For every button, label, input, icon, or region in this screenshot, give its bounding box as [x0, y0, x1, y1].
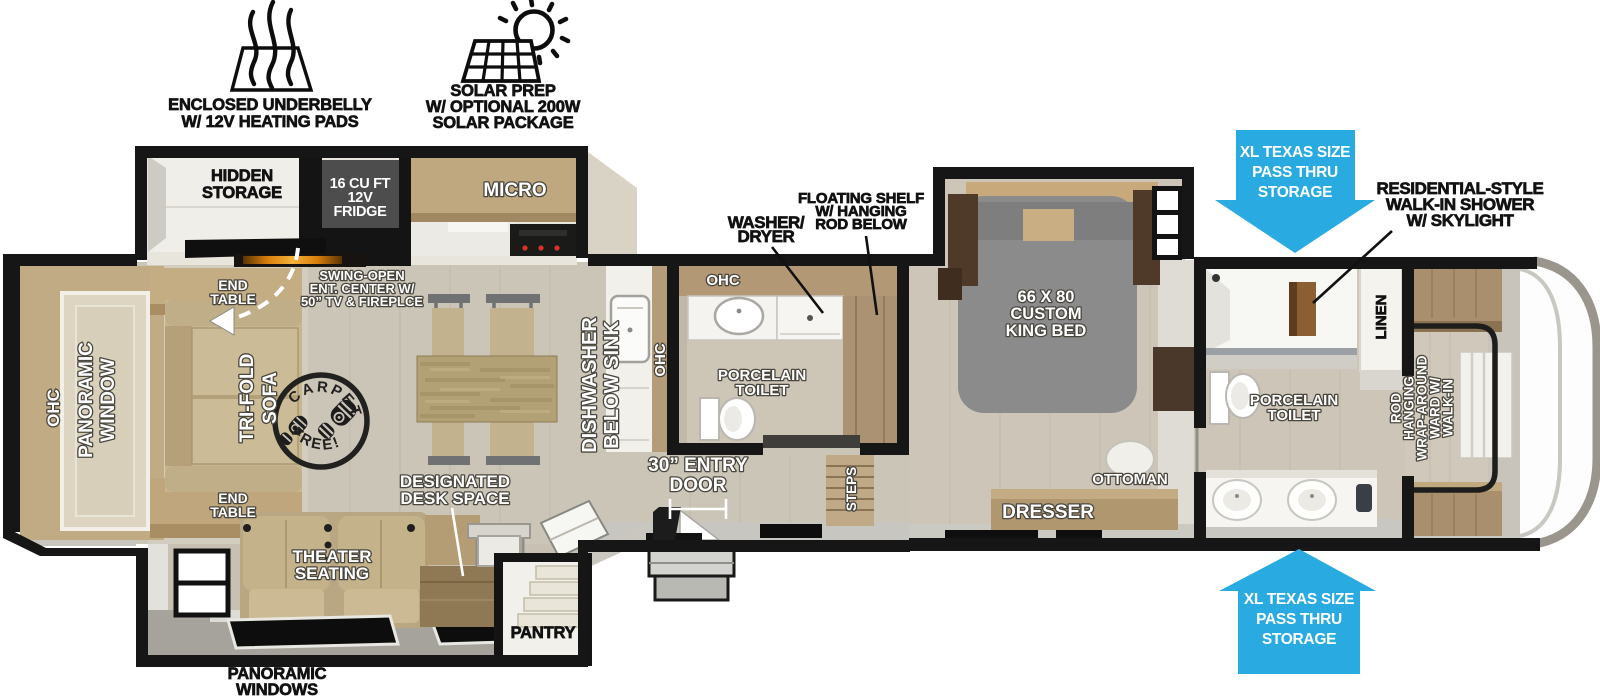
svg-text:STORAGE: STORAGE: [202, 184, 282, 202]
svg-text:DOOR: DOOR: [670, 475, 727, 496]
svg-text:DISHWASHER: DISHWASHER: [579, 317, 601, 453]
svg-text:PASS THRU: PASS THRU: [1256, 611, 1342, 628]
svg-text:WARD W/: WARD W/: [1428, 377, 1443, 439]
svg-text:MICRO: MICRO: [483, 180, 546, 201]
svg-text:STEPS: STEPS: [844, 467, 859, 511]
svg-text:PANORAMIC: PANORAMIC: [76, 342, 97, 458]
svg-text:50” TV & FIREPLCE: 50” TV & FIREPLCE: [301, 294, 423, 309]
svg-text:OHC: OHC: [706, 272, 740, 289]
svg-text:TRI-FOLD: TRI-FOLD: [237, 354, 258, 443]
svg-text:30” ENTRY: 30” ENTRY: [648, 455, 748, 476]
svg-text:XL TEXAS SIZE: XL TEXAS SIZE: [1240, 144, 1350, 161]
svg-text:SOLAR PACKAGE: SOLAR PACKAGE: [432, 114, 573, 132]
svg-text:BELOW SINK: BELOW SINK: [601, 321, 623, 449]
svg-text:WINDOWS: WINDOWS: [236, 681, 318, 699]
svg-text:TABLE: TABLE: [210, 504, 256, 520]
svg-text:TOILET: TOILET: [735, 382, 788, 399]
svg-text:66 X 80: 66 X 80: [1018, 288, 1075, 306]
svg-text:TABLE: TABLE: [210, 291, 256, 307]
svg-text:LINEN: LINEN: [1373, 295, 1390, 340]
svg-text:SEATING: SEATING: [295, 564, 369, 583]
svg-text:ROD: ROD: [1389, 393, 1404, 423]
svg-text:DRESSER: DRESSER: [1002, 502, 1094, 523]
svg-text:WRAP-AROUND: WRAP-AROUND: [1415, 355, 1430, 460]
svg-text:DESK SPACE: DESK SPACE: [400, 489, 509, 508]
svg-text:W/ SKYLIGHT: W/ SKYLIGHT: [1406, 211, 1514, 230]
svg-text:OHC: OHC: [44, 389, 63, 427]
svg-text:KING BED: KING BED: [1006, 322, 1087, 340]
svg-text:PANTRY: PANTRY: [511, 624, 576, 642]
svg-text:PASS THRU: PASS THRU: [1252, 164, 1338, 181]
svg-text:CUSTOM: CUSTOM: [1010, 305, 1081, 323]
svg-text:SOFA: SOFA: [260, 372, 281, 424]
svg-text:WALK-IN: WALK-IN: [1441, 379, 1456, 437]
svg-text:HANGING: HANGING: [1402, 376, 1417, 440]
svg-text:ENCLOSED UNDERBELLY: ENCLOSED UNDERBELLY: [168, 96, 372, 114]
svg-text:ROD BELOW: ROD BELOW: [815, 216, 908, 233]
svg-text:OTTOMAN: OTTOMAN: [1092, 471, 1168, 488]
svg-text:FRIDGE: FRIDGE: [334, 204, 388, 220]
svg-text:TOILET: TOILET: [1267, 407, 1320, 424]
svg-text:W/ 12V HEATING PADS: W/ 12V HEATING PADS: [181, 113, 358, 131]
svg-text:HIDDEN: HIDDEN: [211, 167, 273, 185]
svg-text:DRYER: DRYER: [738, 227, 795, 246]
svg-text:STORAGE: STORAGE: [1258, 184, 1332, 201]
svg-text:STORAGE: STORAGE: [1262, 631, 1336, 648]
svg-text:WINDOW: WINDOW: [98, 358, 119, 441]
svg-text:OHC: OHC: [652, 343, 669, 377]
svg-text:XL TEXAS SIZE: XL TEXAS SIZE: [1244, 591, 1354, 608]
